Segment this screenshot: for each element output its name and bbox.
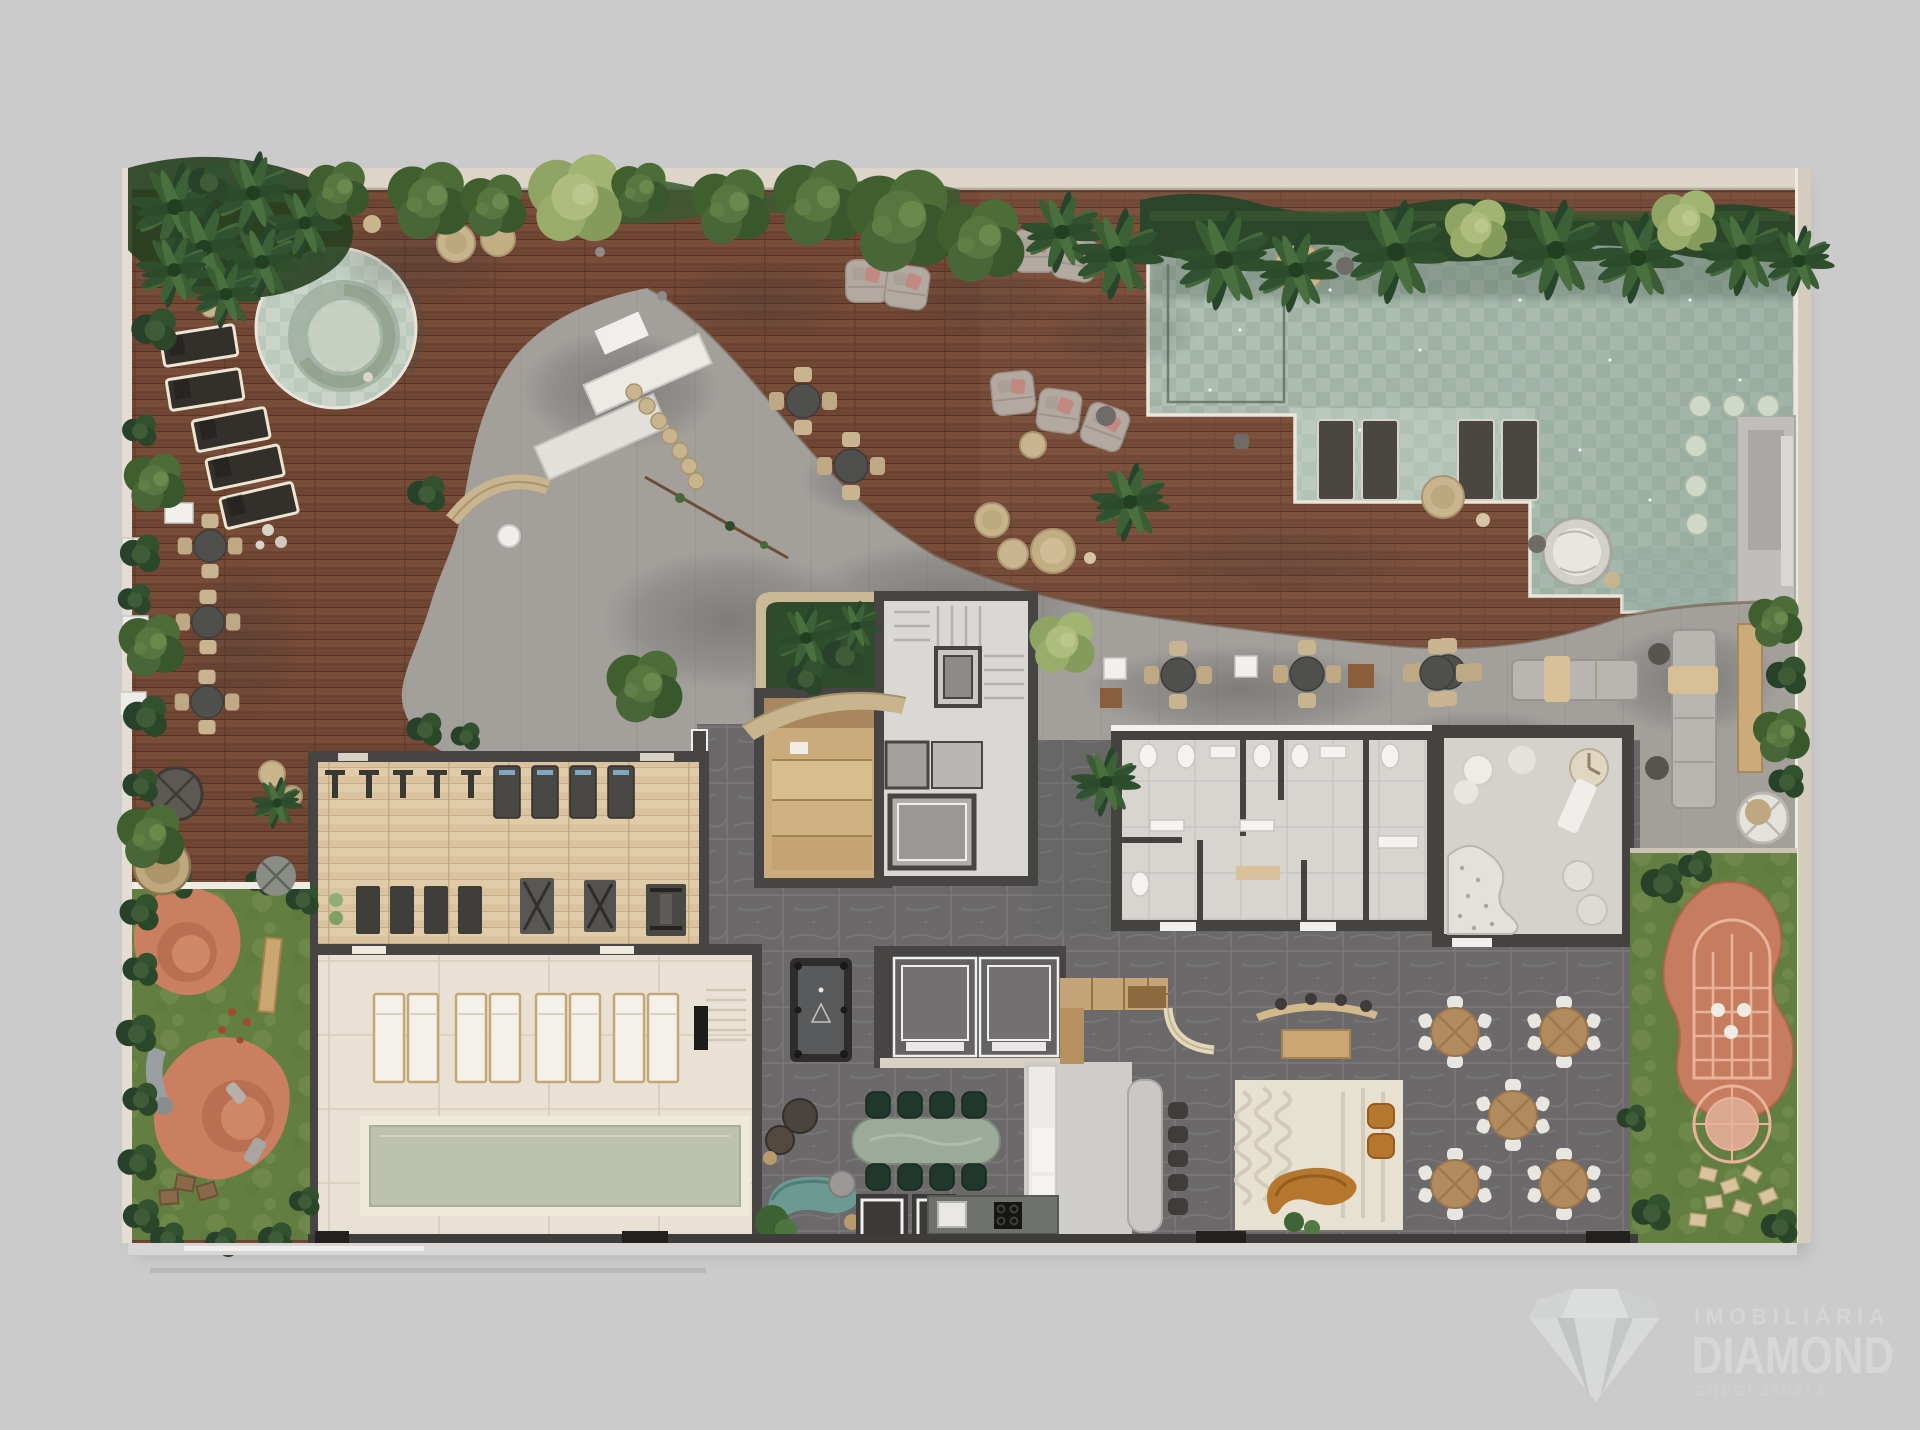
svg-text:CRECI 25031J: CRECI 25031J <box>1694 1383 1826 1400</box>
svg-text:DIAMOND: DIAMOND <box>1692 1327 1894 1385</box>
svg-text:IMOBILIÁRIA: IMOBILIÁRIA <box>1694 1304 1890 1329</box>
